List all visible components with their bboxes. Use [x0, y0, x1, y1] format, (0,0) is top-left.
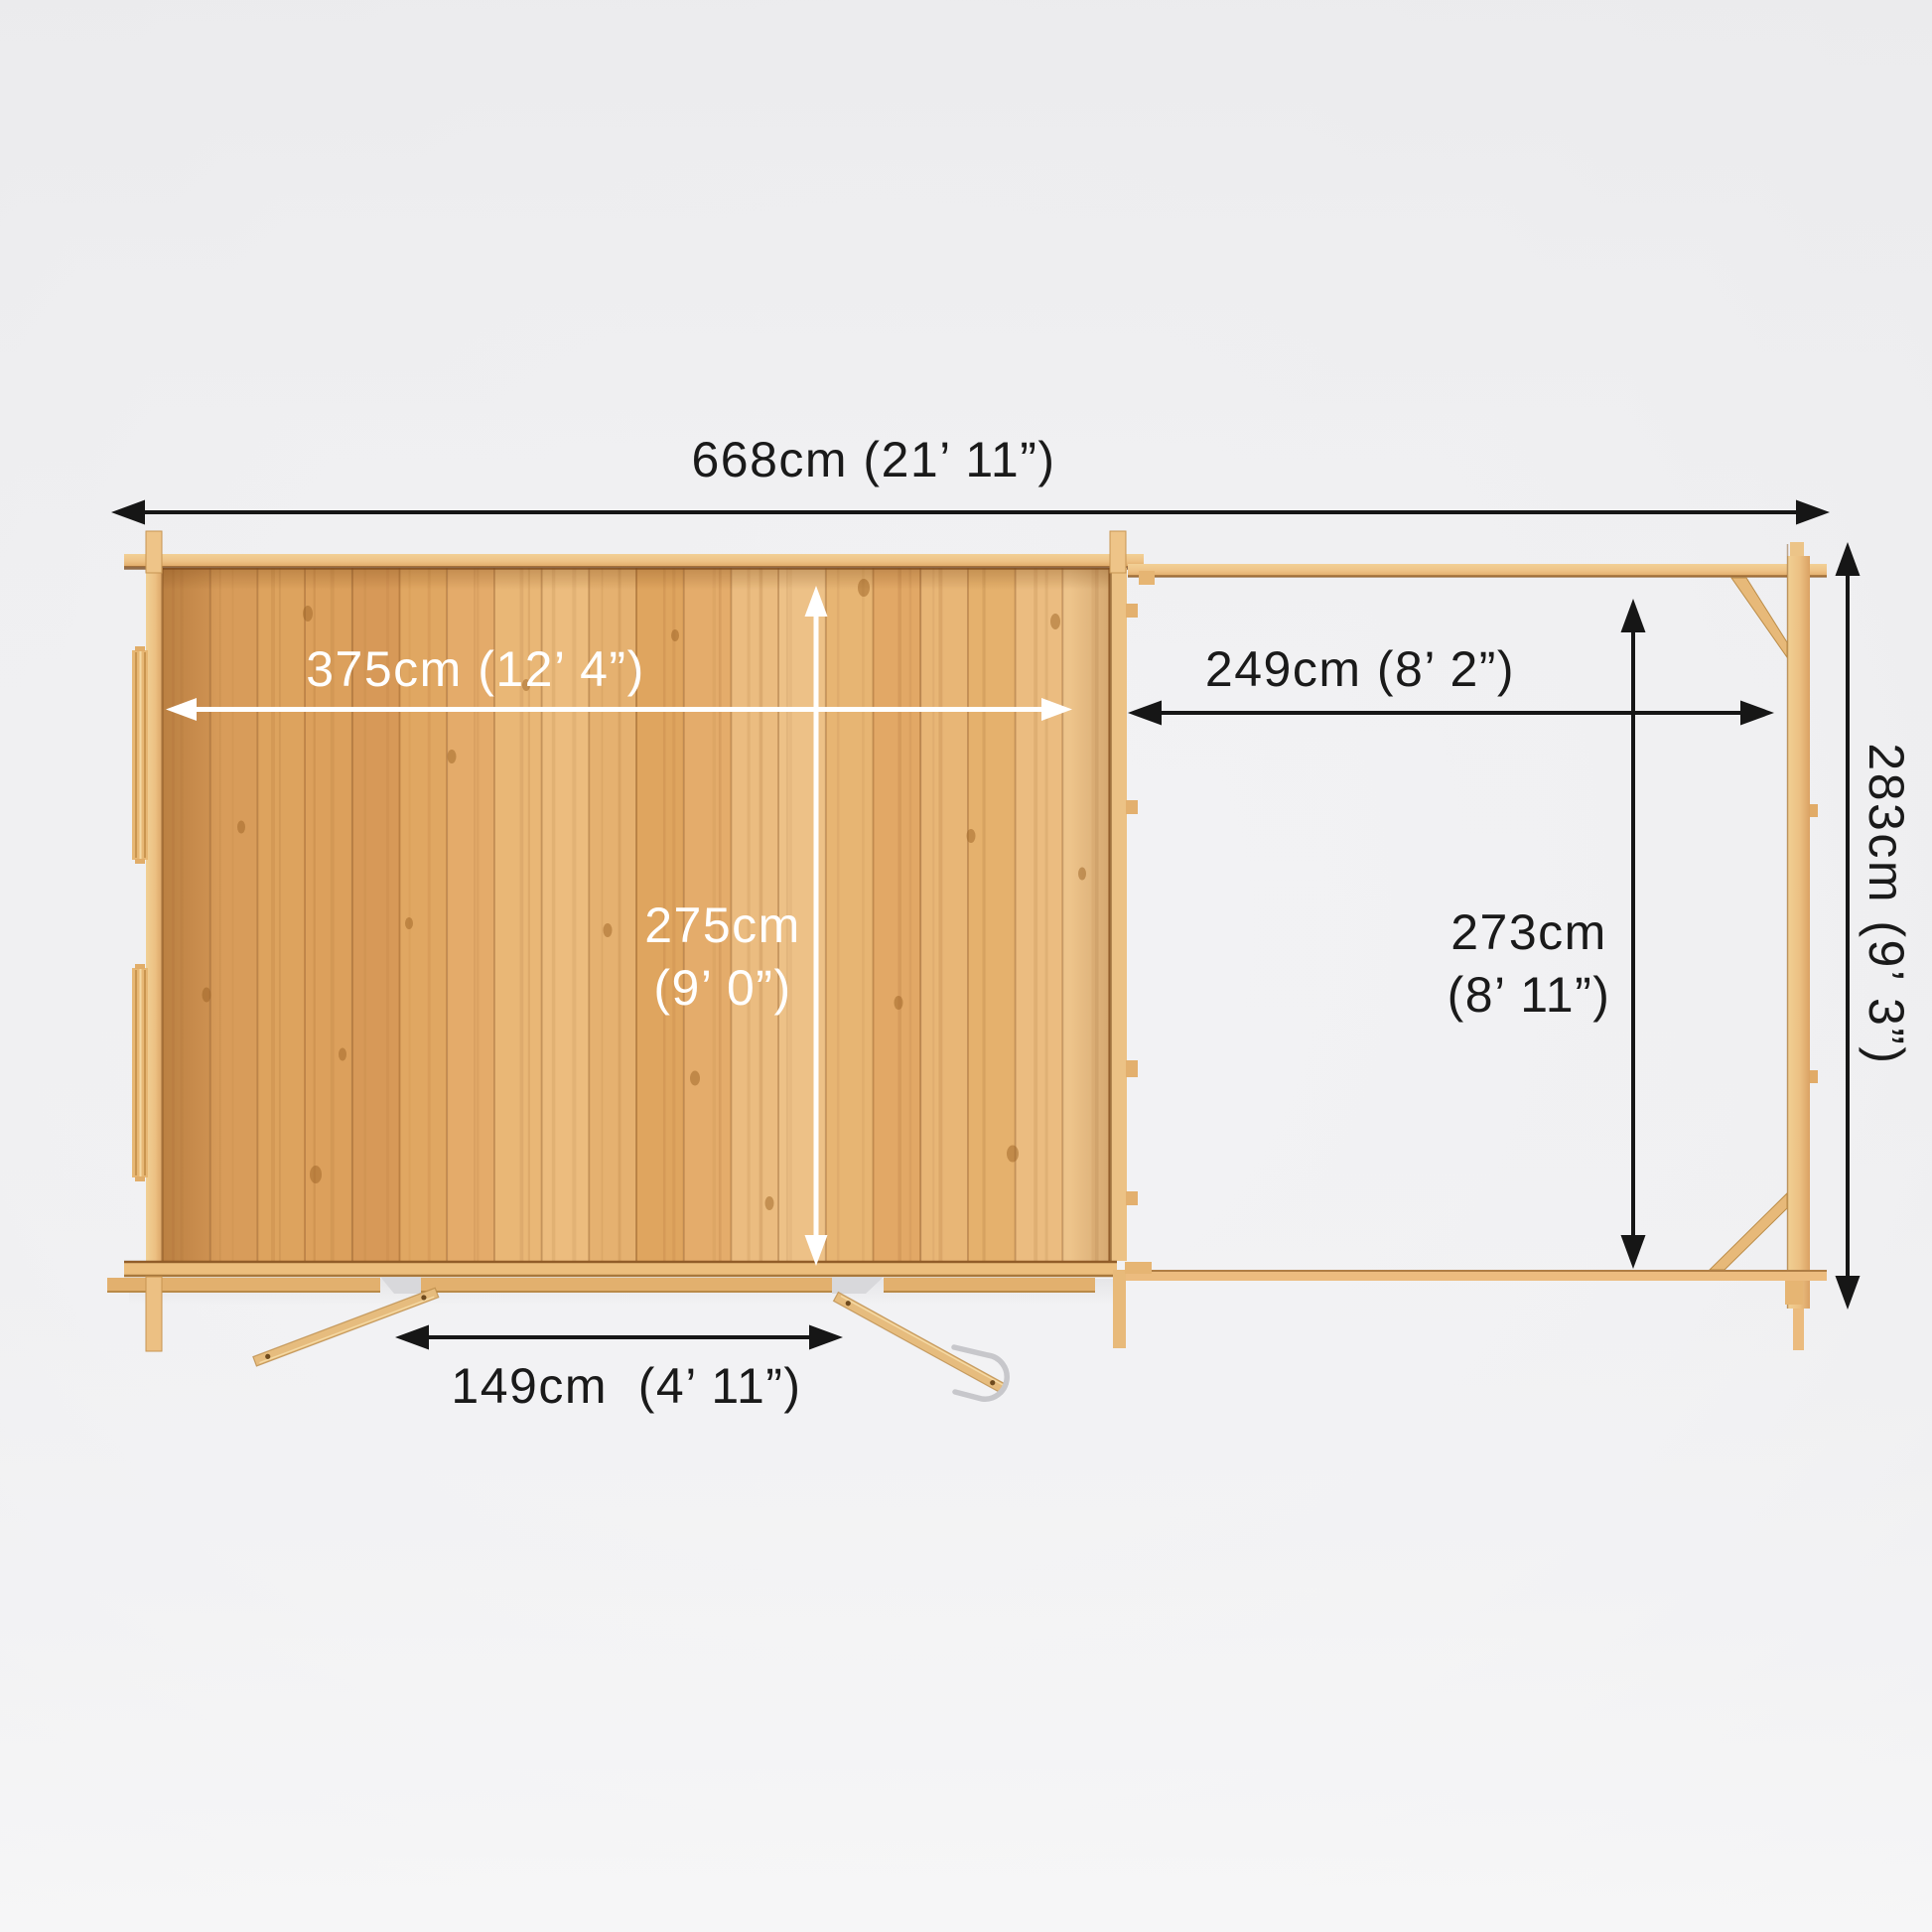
svg-text:283cm (9’ 3”): 283cm (9’ 3”) [1859, 743, 1914, 1065]
svg-text:668cm (21’ 11”): 668cm (21’ 11”) [691, 432, 1055, 487]
svg-text:273cm: 273cm [1450, 904, 1607, 960]
svg-text:(8’ 11”): (8’ 11”) [1448, 967, 1611, 1023]
svg-text:149cm (4’ 11”): 149cm (4’ 11”) [451, 1358, 801, 1414]
svg-text:375cm (12’ 4”): 375cm (12’ 4”) [306, 641, 644, 697]
svg-text:(9’ 0”): (9’ 0”) [653, 960, 791, 1016]
svg-text:275cm: 275cm [644, 897, 801, 953]
svg-text:249cm (8’ 2”): 249cm (8’ 2”) [1205, 641, 1515, 697]
